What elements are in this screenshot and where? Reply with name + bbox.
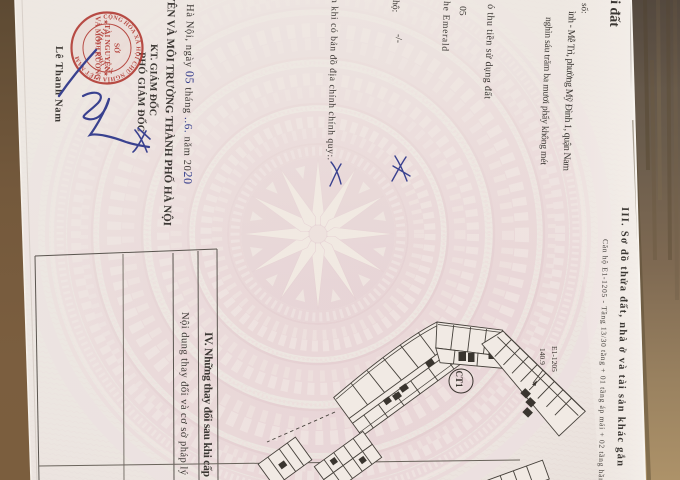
svg-text:KT. GIÁM ĐỐC: KT. GIÁM ĐỐC (147, 44, 161, 116)
svg-text:hộ:: hộ: (390, 0, 400, 12)
svg-text:i đất: i đất (606, 0, 622, 28)
svg-text:-/-: -/- (393, 34, 403, 43)
svg-text:TÀI NGUYÊN: TÀI NGUYÊN (103, 24, 113, 72)
svg-text:he Emerald: he Emerald (439, 1, 451, 52)
svg-text:IV. Những thay đổi sau khi cấp: IV. Những thay đổi sau khi cấp (201, 332, 215, 477)
svg-text:VÀ MÔI TRƯỜNG: VÀ MÔI TRƯỜNG (94, 16, 104, 80)
svg-text:140.9: 140.9 (538, 348, 547, 365)
svg-text:★: ★ (102, 19, 109, 24)
svg-text:05: 05 (457, 6, 467, 16)
svg-text:CT1: CT1 (454, 371, 464, 389)
svg-text:E1-1205: E1-1205 (550, 346, 559, 372)
svg-text:Lê Thanh Nam: Lê Thanh Nam (52, 46, 64, 122)
svg-text:SỞ: SỞ (113, 43, 123, 53)
svg-text:số:: số: (580, 3, 590, 14)
svg-text:Nội dung thay đổi và cơ sở phá: Nội dung thay đổi và cơ sở pháp lý (178, 312, 190, 476)
svg-text:★: ★ (102, 71, 109, 76)
